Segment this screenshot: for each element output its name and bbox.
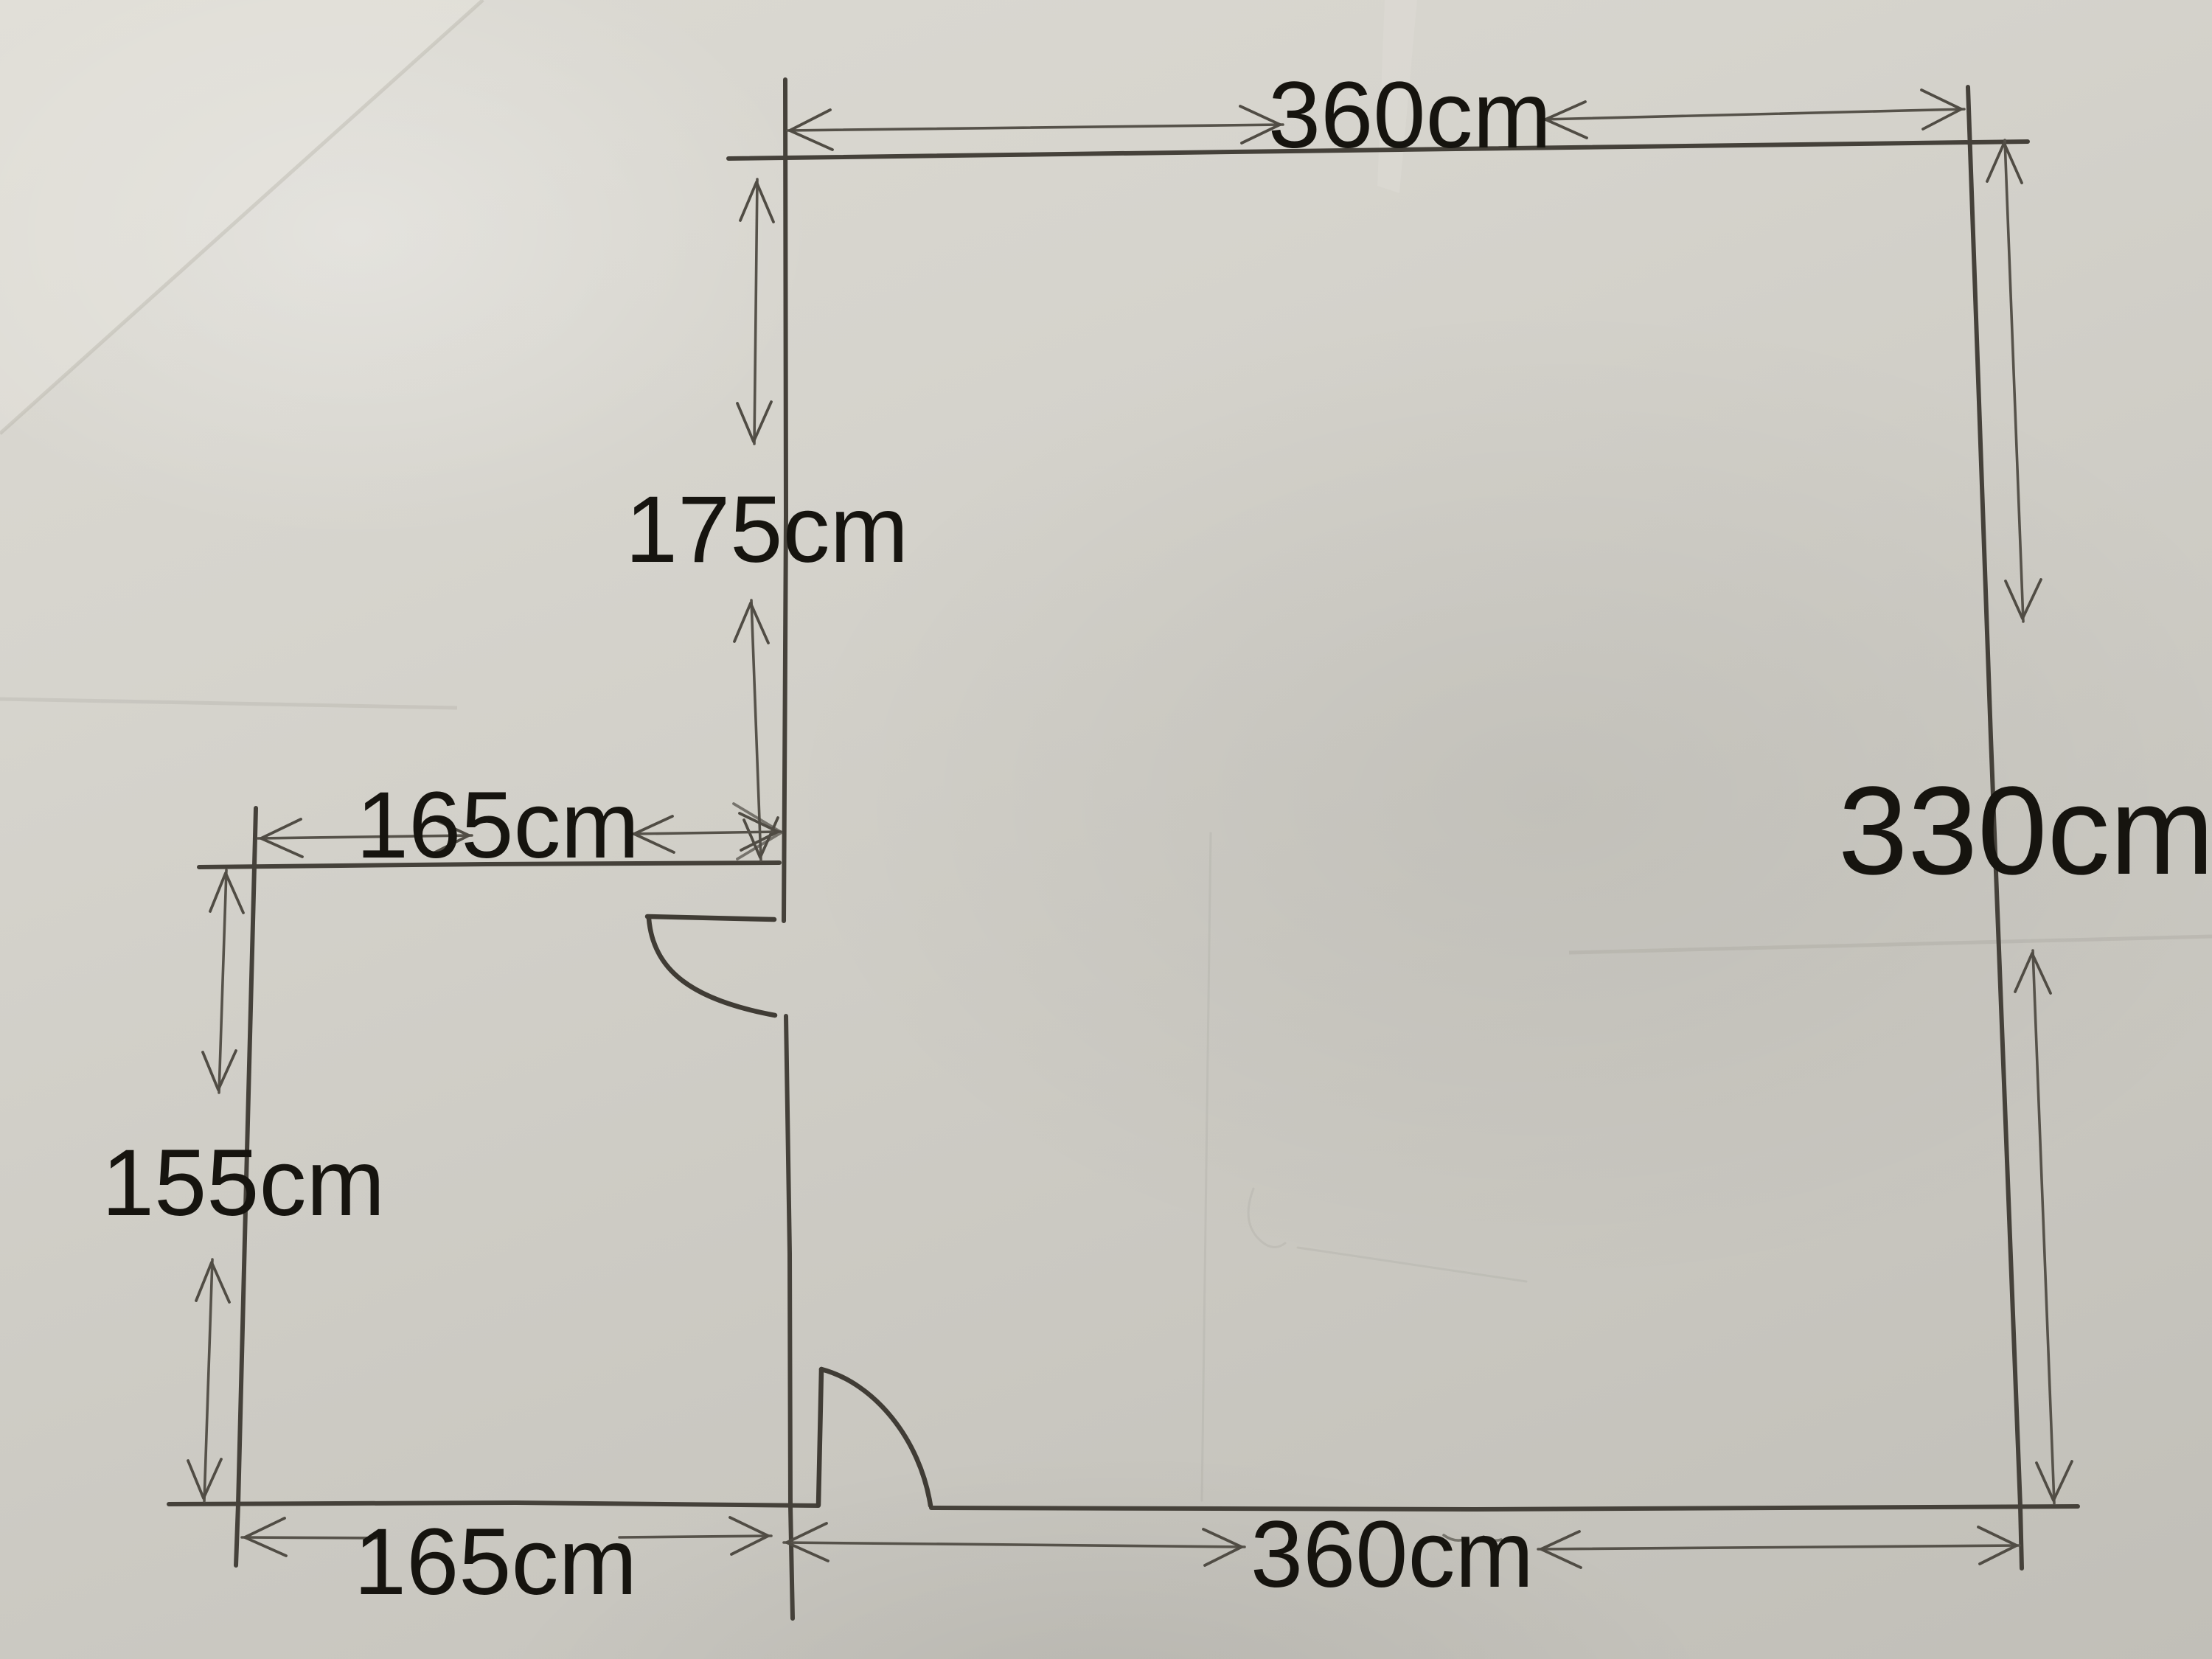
dimension-line bbox=[204, 1259, 212, 1501]
dimension-bottom-right-width: 360cm bbox=[784, 1502, 2020, 1607]
pencil-line-vertical bbox=[1202, 833, 1211, 1500]
dimension-label-bottom-left-width: 165cm bbox=[354, 1509, 637, 1615]
dimension-label-top-width: 360cm bbox=[1268, 63, 1551, 168]
floor-plan-sketch: 360cm 175cm 165cm bbox=[0, 0, 2212, 1659]
dimension-label-right-height: 330cm bbox=[1838, 761, 2212, 901]
dimension-upper-inner-height: 175cm bbox=[625, 179, 908, 860]
pencil-line-diagonal bbox=[1298, 1248, 1526, 1281]
door-main-room-leaf bbox=[818, 1369, 821, 1505]
dimension-line bbox=[631, 832, 781, 834]
dimension-label-left-height: 155cm bbox=[102, 1130, 385, 1236]
paper-fold-edge bbox=[0, 0, 483, 434]
pencil-construction-marks bbox=[1202, 833, 1526, 1500]
wall-bottom-left bbox=[169, 1503, 818, 1506]
dimension-left-height: 155cm bbox=[102, 870, 385, 1501]
dimension-bottom-left-width: 165cm bbox=[242, 1509, 771, 1615]
door-main-room-swing-arc bbox=[821, 1369, 931, 1506]
dimension-line bbox=[787, 125, 1283, 131]
dimension-line bbox=[2033, 950, 2054, 1503]
dimension-line bbox=[2005, 140, 2023, 622]
dimension-line bbox=[754, 179, 757, 444]
paper-sheet-photo: 360cm 175cm 165cm bbox=[0, 0, 2212, 1659]
door-side-room-leaf bbox=[647, 917, 774, 919]
dimension-line bbox=[1543, 109, 1964, 119]
wall-shared-lower bbox=[786, 1016, 793, 1618]
dimension-top-width: 360cm bbox=[787, 63, 1964, 168]
dimension-line bbox=[619, 1536, 771, 1537]
dimension-line bbox=[784, 1543, 1245, 1547]
dimension-line bbox=[1538, 1545, 2020, 1549]
dimension-right-height: 330cm bbox=[1838, 140, 2212, 1503]
pencil-hook-mark bbox=[1248, 1189, 1285, 1247]
door-side-room-swing-arc bbox=[649, 919, 775, 1015]
paper-crease-right bbox=[1569, 936, 2212, 953]
dimension-label-inner-width: 165cm bbox=[356, 773, 639, 878]
dimension-label-bottom-right-width: 360cm bbox=[1251, 1502, 1534, 1607]
paper-fold-highlight bbox=[0, 0, 483, 434]
dimension-label-upper-inner-height: 175cm bbox=[625, 477, 908, 582]
dimension-line bbox=[219, 870, 226, 1093]
paper-crease-left bbox=[0, 699, 457, 708]
